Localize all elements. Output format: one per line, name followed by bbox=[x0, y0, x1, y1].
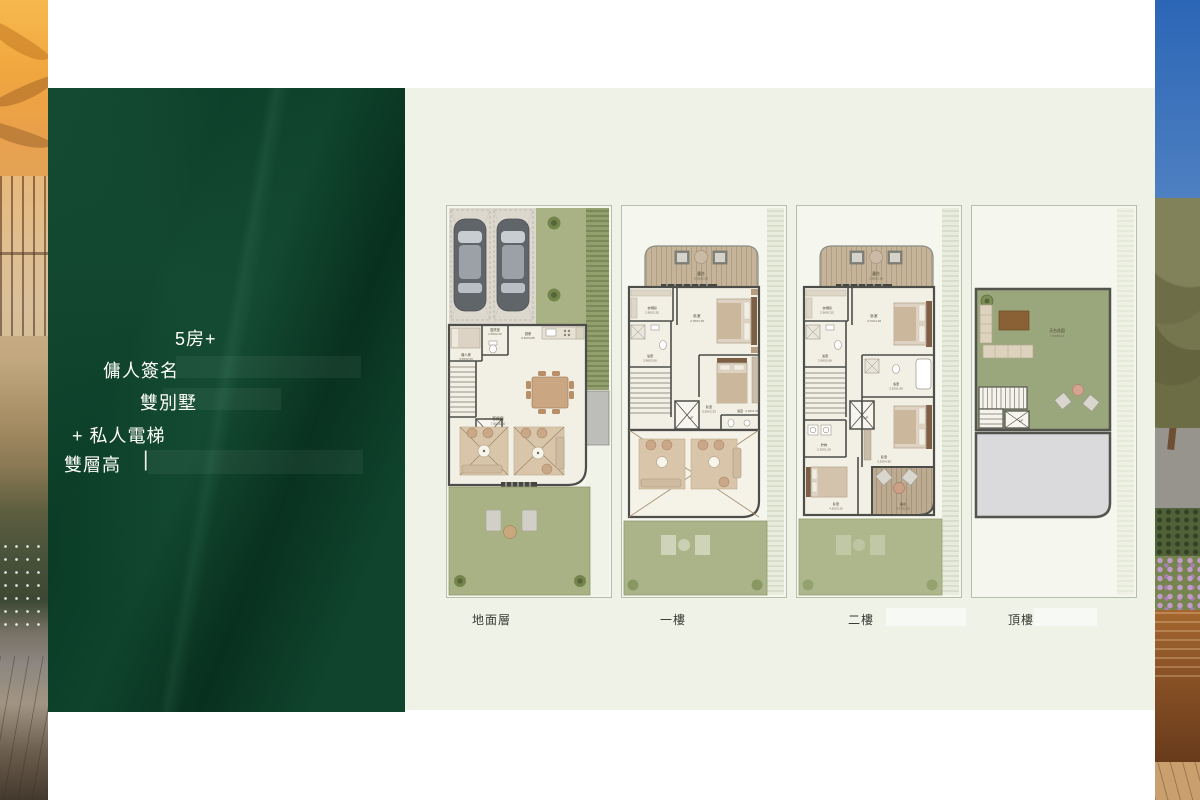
caption-ghost bbox=[1034, 608, 1097, 626]
floor-plan-ground-svg: 傭人房 3.65X2.60 盥洗室 1.55X2.20 bbox=[446, 205, 612, 598]
dining-table bbox=[526, 371, 574, 414]
background-photo-left bbox=[0, 0, 48, 800]
lower-roof bbox=[976, 433, 1110, 517]
bed2-dim: 3.50X2.23 bbox=[702, 410, 716, 414]
building-glass-facade bbox=[0, 176, 48, 336]
balcony-label: 露台 bbox=[697, 271, 705, 276]
floor-plan-ground: 傭人房 3.65X2.60 盥洗室 1.55X2.20 bbox=[446, 205, 612, 598]
kitchen-dim: 3.60X3.85 bbox=[521, 336, 535, 340]
headline-line-4: + 私人電梯 bbox=[72, 422, 166, 448]
balcony-dim: 3.38X2.36 bbox=[869, 277, 883, 281]
bath2-dim: 2.26X1.50 bbox=[745, 409, 759, 413]
master-label: 臥室 bbox=[693, 313, 701, 318]
store-dim: 2.25X1.20 bbox=[817, 448, 831, 452]
floor-plan-roof-svg: 天台花園 7.50X8.10 L/F bbox=[971, 205, 1137, 598]
headline-line-3: 雙別墅 bbox=[140, 389, 197, 415]
sitting-group bbox=[460, 427, 508, 475]
rear-garden bbox=[449, 487, 590, 595]
garden-below bbox=[799, 519, 942, 595]
caption-first-floor: 一樓 bbox=[660, 611, 686, 628]
text-cursor: | bbox=[143, 448, 148, 472]
caption-ghost bbox=[886, 608, 966, 626]
bath2-label: 浴室 bbox=[737, 408, 743, 413]
olive-tree-canopy bbox=[1155, 198, 1200, 428]
side-garden bbox=[536, 208, 586, 325]
roof-garden-dim: 7.50X8.10 bbox=[1050, 334, 1064, 338]
sitting-group bbox=[514, 427, 564, 475]
bath1-dim: 2.90X2.06 bbox=[818, 359, 832, 363]
lift: L/F bbox=[675, 401, 699, 429]
caption-roof-floor: 頂樓 bbox=[1008, 611, 1034, 628]
living-dim: 7.50X8.40 bbox=[491, 422, 506, 426]
balcony: 露台 3.38X2.36 bbox=[820, 246, 933, 287]
terrace-deck: 露台 3.17X2.55 bbox=[872, 467, 934, 515]
car-icon bbox=[454, 219, 486, 311]
balcony-dim: 5.38X2.56 bbox=[694, 277, 708, 281]
bath1-dim: 2.90X2.06 bbox=[643, 359, 657, 363]
equipment-pad bbox=[586, 391, 609, 445]
flower-bushes bbox=[0, 540, 48, 636]
terrace-label: 露台 bbox=[900, 501, 906, 506]
bath1-label: 浴室 bbox=[647, 353, 653, 358]
ghost-highlight bbox=[148, 450, 363, 474]
caption-second-floor: 二樓 bbox=[848, 611, 874, 628]
slide-canvas: 5房+ 傭人簽名 雙別墅 + 私人電梯 雙層高 | bbox=[48, 0, 1155, 800]
maid-room-dim: 3.65X2.60 bbox=[459, 357, 473, 361]
living-label: 客飯廳 bbox=[492, 416, 504, 421]
lift-label: L/F bbox=[864, 416, 869, 420]
palm-frond-icon bbox=[0, 117, 48, 154]
master-dim: 4.78X3.35 bbox=[690, 319, 704, 323]
terrace-dim: 3.17X2.55 bbox=[896, 507, 910, 511]
caption-ground-floor: 地面層 bbox=[472, 611, 511, 628]
floor-plan-second: 露台 3.38X2.36 衣帽間 2.90X2.25 bbox=[796, 205, 962, 598]
floor-plan-second-svg: 露台 3.38X2.36 衣帽間 2.90X2.25 bbox=[796, 205, 962, 598]
headline-line-2: 傭人簽名 bbox=[103, 357, 179, 383]
floor-plan-roof: 天台花園 7.50X8.10 L/F bbox=[971, 205, 1137, 598]
lift: L/F bbox=[1005, 411, 1029, 428]
headline-line-5: 雙層高 bbox=[64, 451, 121, 477]
bed3-label: 臥室 bbox=[881, 454, 887, 459]
pergola-louvers bbox=[1117, 208, 1134, 595]
bench-slats bbox=[1155, 612, 1200, 682]
bath2-label: 浴室 bbox=[893, 381, 899, 386]
purple-flowers bbox=[1155, 556, 1200, 618]
headline-panel: 5房+ 傭人簽名 雙別墅 + 私人電梯 雙層高 | bbox=[48, 88, 405, 712]
closet-label: 衣帽間 bbox=[822, 305, 831, 310]
closet-dim: 1.90X2.25 bbox=[645, 311, 659, 315]
powder-room-dim: 1.55X2.20 bbox=[488, 332, 502, 336]
bed3-dim: 3.25X4.30 bbox=[877, 460, 891, 464]
palm-frond-icon bbox=[0, 17, 48, 68]
floor-plans-area: 傭人房 3.65X2.60 盥洗室 1.55X2.20 bbox=[405, 88, 1155, 710]
car-icon bbox=[497, 219, 529, 311]
ghost-highlight bbox=[176, 356, 361, 378]
bath2-dim: 3.25X1.90 bbox=[889, 387, 903, 391]
roof-garden: 天台花園 7.50X8.10 L/F bbox=[976, 289, 1110, 430]
master-dim: 4.70X4.20 bbox=[867, 319, 881, 323]
bath1-label: 浴室 bbox=[822, 353, 828, 358]
lift-label: L/F bbox=[1019, 419, 1024, 423]
floor-plan-first-svg: 露台 5.38X2.56 衣帽間 1.90X2.25 bbox=[621, 205, 787, 598]
closet-dim: 2.90X2.25 bbox=[820, 311, 834, 315]
pergola-louvers bbox=[767, 208, 784, 595]
headline-line-1: 5房+ bbox=[175, 325, 217, 351]
floor-plan-first: 露台 5.38X2.56 衣帽間 1.90X2.25 bbox=[621, 205, 787, 598]
balcony-label: 露台 bbox=[872, 271, 880, 276]
garage bbox=[449, 208, 536, 325]
outdoor-table bbox=[1073, 385, 1084, 396]
bed4-dim: 4.20X3.20 bbox=[829, 507, 843, 511]
garden-below bbox=[624, 521, 767, 595]
roof-garden-label: 天台花園 bbox=[1049, 328, 1065, 333]
bed4-label: 臥室 bbox=[833, 501, 839, 506]
master-label: 臥室 bbox=[870, 313, 878, 318]
living-void bbox=[629, 430, 759, 517]
stone-pavement bbox=[0, 656, 48, 800]
building-floor-line bbox=[0, 252, 48, 255]
pergola-louvers bbox=[942, 208, 959, 595]
closet-label: 衣帽間 bbox=[647, 305, 656, 310]
terrace-tiles bbox=[1155, 762, 1200, 800]
store-label: 貯物 bbox=[821, 442, 827, 447]
presentation-slide: 5房+ 傭人簽名 雙別墅 + 私人電梯 雙層高 | bbox=[0, 0, 1200, 800]
palm-frond-icon bbox=[0, 73, 48, 113]
background-photo-right bbox=[1155, 0, 1200, 800]
lift-label: L/F bbox=[689, 416, 694, 420]
pergola-louvers bbox=[586, 208, 609, 390]
balcony: 露台 5.38X2.56 bbox=[645, 246, 758, 287]
bed2-label: 臥室 bbox=[706, 404, 712, 409]
